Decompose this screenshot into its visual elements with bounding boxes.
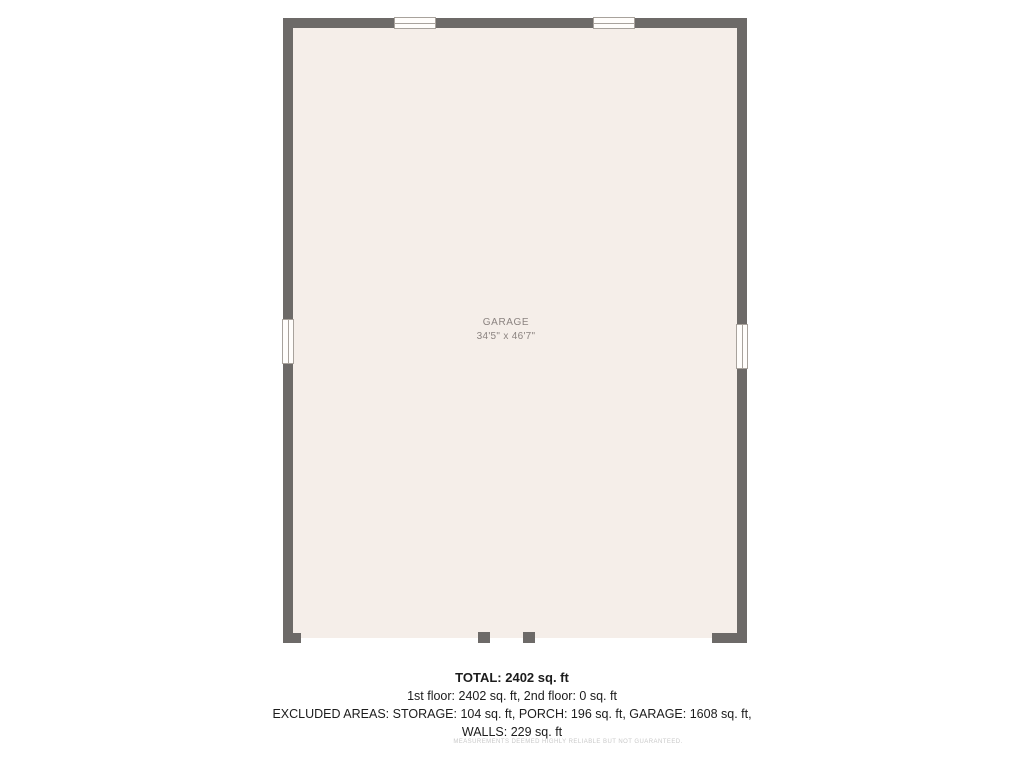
- wall-bottom-stub-middle-2: [523, 632, 535, 643]
- summary-total: TOTAL: 2402 sq. ft: [272, 669, 751, 687]
- wall-bottom-stub-middle-1: [478, 632, 490, 643]
- window-pane: [395, 23, 435, 24]
- room-dimensions: 34'5" x 46'7": [477, 330, 536, 344]
- wall-top-segment-left: [283, 18, 395, 28]
- summary-floors: 1st floor: 2402 sq. ft, 2nd floor: 0 sq.…: [272, 687, 751, 705]
- wall-top-segment-middle: [436, 18, 593, 28]
- room-label: GARAGE 34'5" x 46'7": [477, 316, 536, 344]
- window-pane: [742, 325, 743, 368]
- wall-bottom-stub-left: [283, 633, 301, 643]
- measurements-disclaimer: MEASUREMENTS DEEMED HIGHLY RELIABLE BUT …: [453, 739, 682, 745]
- room-name: GARAGE: [477, 316, 536, 330]
- floorplan: GARAGE 34'5" x 46'7": [283, 18, 747, 643]
- window-top-right-icon: [593, 17, 635, 29]
- window-pane: [594, 23, 634, 24]
- window-right-icon: [736, 324, 748, 369]
- window-left-icon: [282, 319, 294, 364]
- floorplan-page: GARAGE 34'5" x 46'7" TOTAL: 2402 sq. ft …: [0, 0, 1024, 768]
- area-summary: TOTAL: 2402 sq. ft 1st floor: 2402 sq. f…: [272, 669, 751, 741]
- wall-bottom-stub-right: [712, 633, 747, 643]
- window-top-left-icon: [394, 17, 436, 29]
- summary-excluded-areas: EXCLUDED AREAS: STORAGE: 104 sq. ft, POR…: [272, 705, 751, 723]
- window-pane: [288, 320, 289, 363]
- wall-top-segment-right: [635, 18, 747, 28]
